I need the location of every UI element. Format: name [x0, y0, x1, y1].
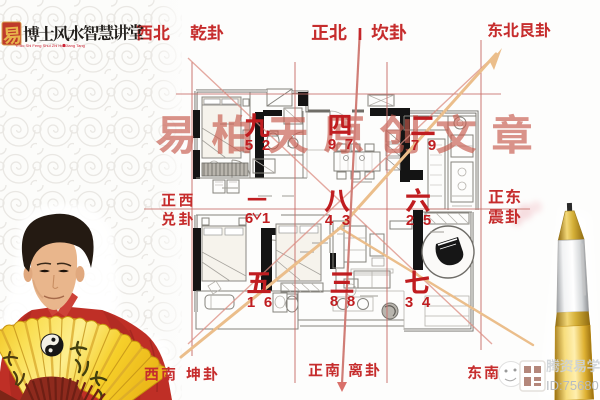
svg-text:7: 7: [345, 136, 353, 153]
svg-text:8: 8: [347, 293, 355, 310]
svg-text:2: 2: [262, 137, 270, 154]
svg-text:ID:75680: ID:75680: [546, 378, 599, 393]
svg-text:6: 6: [245, 210, 253, 227]
svg-text:2: 2: [406, 212, 414, 229]
svg-text:5: 5: [245, 137, 253, 154]
svg-text:4: 4: [422, 294, 431, 311]
svg-text:1: 1: [262, 210, 270, 227]
svg-text:9: 9: [428, 137, 436, 154]
svg-text:7: 7: [411, 137, 419, 154]
svg-text:6: 6: [264, 294, 272, 311]
svg-text:3: 3: [405, 294, 413, 311]
svg-text:4: 4: [325, 212, 334, 229]
svg-text:9: 9: [328, 136, 336, 153]
svg-text:Yi Bo Shi Feng Shui Zhi Hui Ji: Yi Bo Shi Feng Shui Zhi Hui Jiang Tang: [15, 43, 85, 48]
svg-text:1: 1: [247, 294, 255, 311]
svg-text:3: 3: [342, 212, 350, 229]
svg-text:5: 5: [423, 212, 431, 229]
svg-text:8: 8: [330, 293, 338, 310]
